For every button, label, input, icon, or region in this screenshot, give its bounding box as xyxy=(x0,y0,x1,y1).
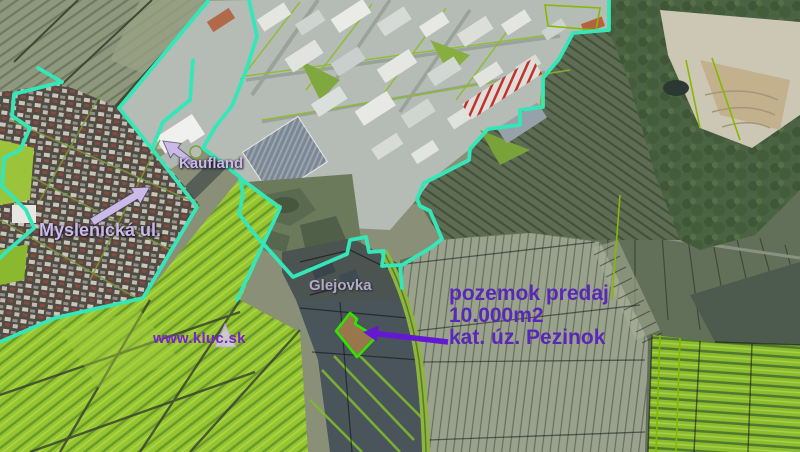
quarry-pond xyxy=(663,80,689,96)
aerial-map-screenshot: Kaufland Myslenická ul. Glejovka www.klu… xyxy=(0,0,800,452)
vineyards-southeast xyxy=(648,335,800,452)
roundabout xyxy=(190,146,202,158)
green-patch-2 xyxy=(0,244,28,285)
aerial-basemap xyxy=(0,0,800,452)
